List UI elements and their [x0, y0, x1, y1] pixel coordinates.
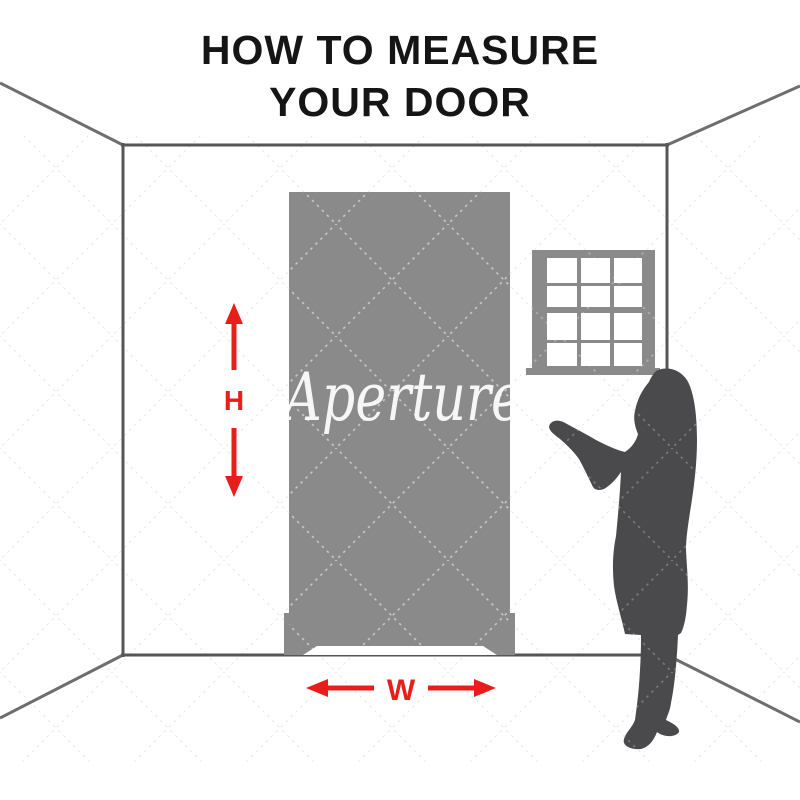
width-arrow-left-shaft	[324, 686, 374, 691]
window	[526, 250, 660, 375]
door-threshold-notch	[303, 646, 497, 655]
how-to-measure-illustration: HOW TO MEASURE YOUR DOOR	[0, 0, 800, 800]
width-arrow-right-shaft	[428, 686, 478, 691]
height-label: H	[224, 385, 244, 416]
height-arrow-down-shaft	[232, 428, 237, 478]
brand-watermark: Aperture	[279, 359, 522, 436]
width-label: W	[387, 674, 416, 707]
window-watermark-pattern	[532, 250, 660, 375]
height-arrow-up-shaft	[232, 320, 237, 370]
room-scene: Aperture H W	[0, 0, 800, 800]
